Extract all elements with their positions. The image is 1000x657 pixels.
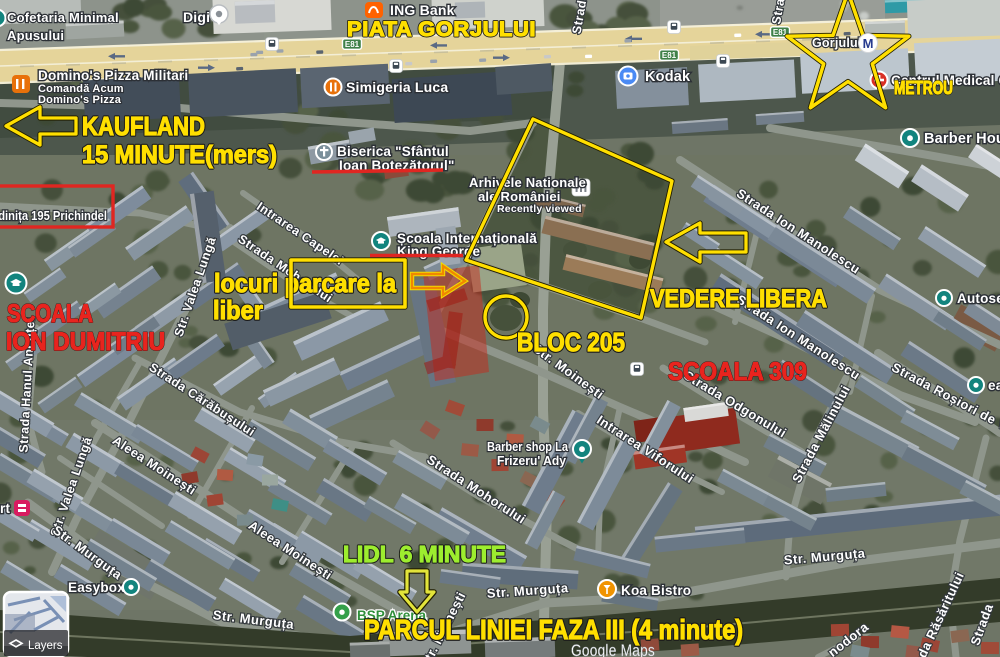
svg-text:Digi: Digi [183,9,210,25]
svg-text:Simigeria Luca: Simigeria Luca [346,79,448,95]
svg-text:Cofetaria Minimal: Cofetaria Minimal [7,10,119,25]
svg-text:ea: ea [988,378,1000,393]
svg-text:KAUFLAND: KAUFLAND [82,111,205,141]
svg-text:METROU: METROU [894,78,953,98]
svg-text:Biserica "Sfântul: Biserica "Sfântul [337,144,449,159]
svg-text:Easybox: Easybox [68,580,125,595]
svg-text:Domino's Pizza Militari: Domino's Pizza Militari [38,68,188,83]
svg-text:Gorjului: Gorjului [812,36,862,50]
svg-text:PARCUL LINIEI FAZA III (4 minu: PARCUL LINIEI FAZA III (4 minute) [364,614,743,645]
svg-text:VEDERE LIBERA: VEDERE LIBERA [650,285,827,313]
svg-text:15 MINUTE(mers): 15 MINUTE(mers) [82,141,277,169]
svg-text:Domino's Pizza: Domino's Pizza [38,94,122,106]
svg-text:ale României: ale României [478,189,561,204]
svg-text:Barber shop La: Barber shop La [487,439,569,454]
svg-text:PIATA GORJULUI: PIATA GORJULUI [347,17,536,41]
svg-text:Barber House: Barber House [924,131,1000,147]
svg-text:M: M [863,36,874,51]
svg-text:Kodak: Kodak [645,69,691,85]
svg-text:Recently viewed: Recently viewed [497,203,582,215]
svg-text:ION DUMITRIU: ION DUMITRIU [6,328,165,356]
svg-text:liber: liber [213,295,263,325]
svg-text:BLOC 205: BLOC 205 [517,327,625,357]
svg-text:Koa Bistro: Koa Bistro [621,583,691,598]
svg-text:Autoserv: Autoserv [957,291,1000,306]
svg-text:ING Bank: ING Bank [390,2,455,18]
svg-text:Arhivele Nationale: Arhivele Nationale [469,175,586,190]
svg-text:Apusului: Apusului [7,28,64,43]
svg-text:E81: E81 [662,51,677,60]
svg-text:LIDL 6 MINUTE: LIDL 6 MINUTE [343,541,506,567]
svg-text:E81: E81 [345,40,360,49]
svg-text:Frizeru' Ady: Frizeru' Ady [497,453,567,468]
svg-text:ădinița 195 Prichindel: ădinița 195 Prichindel [0,209,107,223]
svg-text:Layers: Layers [28,640,63,652]
svg-text:locuri parcare la: locuri parcare la [214,268,396,298]
svg-text:SCOALA: SCOALA [7,300,93,328]
svg-text:SCOALA 309: SCOALA 309 [668,358,807,386]
svg-text:rt: rt [0,501,10,516]
